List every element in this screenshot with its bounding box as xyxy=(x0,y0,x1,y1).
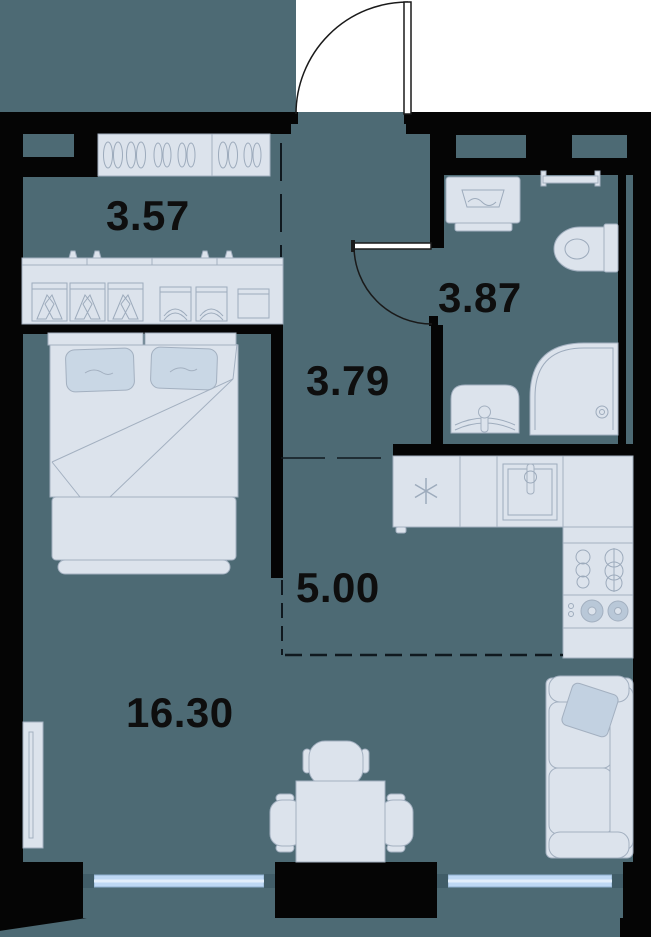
area-label-kitchen: 5.00 xyxy=(296,566,380,610)
area-label-bathroom: 3.87 xyxy=(438,276,522,320)
area-label-hallway: 3.79 xyxy=(306,359,390,403)
shoe-cabinet xyxy=(98,134,270,176)
towel-rail xyxy=(541,171,600,186)
toilet xyxy=(554,224,618,272)
faucet xyxy=(479,406,491,418)
door-swing-arc xyxy=(296,2,408,114)
windows xyxy=(83,874,623,888)
tv-panel xyxy=(23,722,43,848)
door-swing-arc xyxy=(354,246,432,324)
dining-table xyxy=(296,781,385,862)
double-bed xyxy=(48,333,238,574)
floor-plan: 3.57 3.87 3.79 5.00 16.30 xyxy=(0,0,651,937)
tall-cabinet xyxy=(563,456,633,527)
faucet xyxy=(527,464,534,494)
hook-icon xyxy=(69,251,77,258)
pillow xyxy=(65,348,134,392)
area-label-living-room: 16.30 xyxy=(126,691,234,735)
window-frame xyxy=(264,874,275,888)
washing-machine xyxy=(446,177,520,231)
door-leaf xyxy=(404,2,411,114)
bathroom-sink xyxy=(451,385,519,433)
window-frame xyxy=(437,874,448,888)
area-label-wardrobe: 3.57 xyxy=(106,194,190,238)
chair xyxy=(309,741,363,785)
hook-icon xyxy=(201,251,209,258)
window-frame xyxy=(612,874,623,888)
furniture-layer xyxy=(0,0,651,937)
dining-table-set xyxy=(270,741,413,862)
sofa xyxy=(546,676,633,858)
kitchen-counter xyxy=(393,456,633,658)
entrance-door xyxy=(296,2,411,114)
door-leaf xyxy=(354,243,431,249)
shower xyxy=(530,343,618,435)
hanging-rail-cabinet xyxy=(22,251,283,324)
hook-icon xyxy=(225,251,233,258)
bathroom-door xyxy=(351,240,432,324)
window-frame xyxy=(83,874,94,888)
chair xyxy=(381,800,413,846)
door-leaf-end xyxy=(351,240,355,252)
hook-icon xyxy=(93,251,101,258)
